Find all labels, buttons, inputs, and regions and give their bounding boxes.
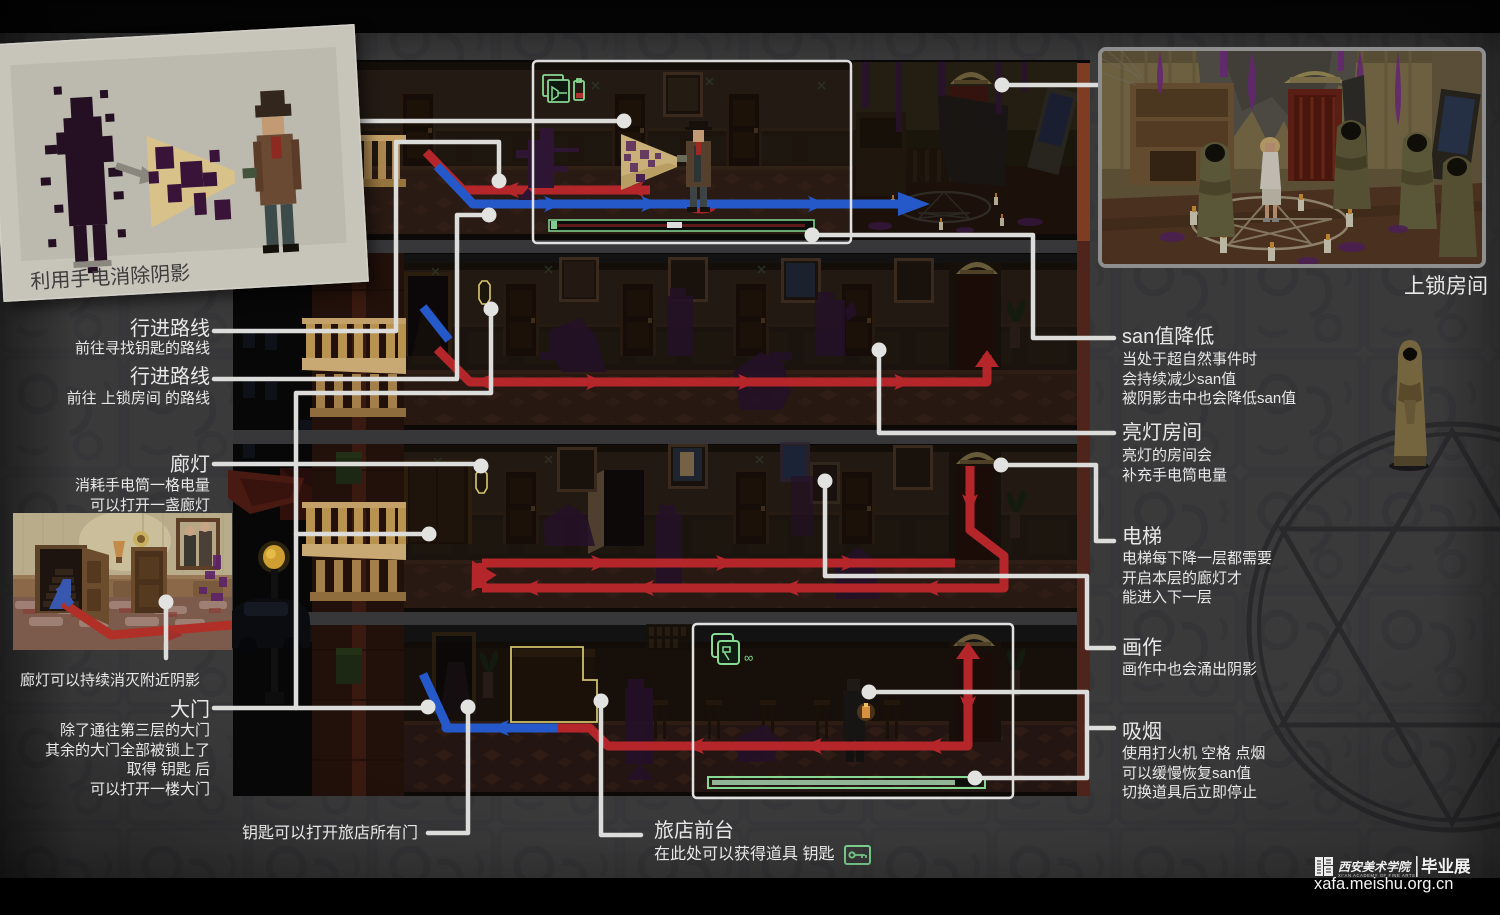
svg-text:毕业展: 毕业展 bbox=[1421, 857, 1471, 876]
svg-text:利用手电消除阴影: 利用手电消除阴影 bbox=[30, 262, 191, 294]
svg-text:西安美术学院: 西安美术学院 bbox=[1338, 860, 1412, 874]
svg-text:xafa.meishu.org.cn: xafa.meishu.org.cn bbox=[1314, 875, 1453, 893]
